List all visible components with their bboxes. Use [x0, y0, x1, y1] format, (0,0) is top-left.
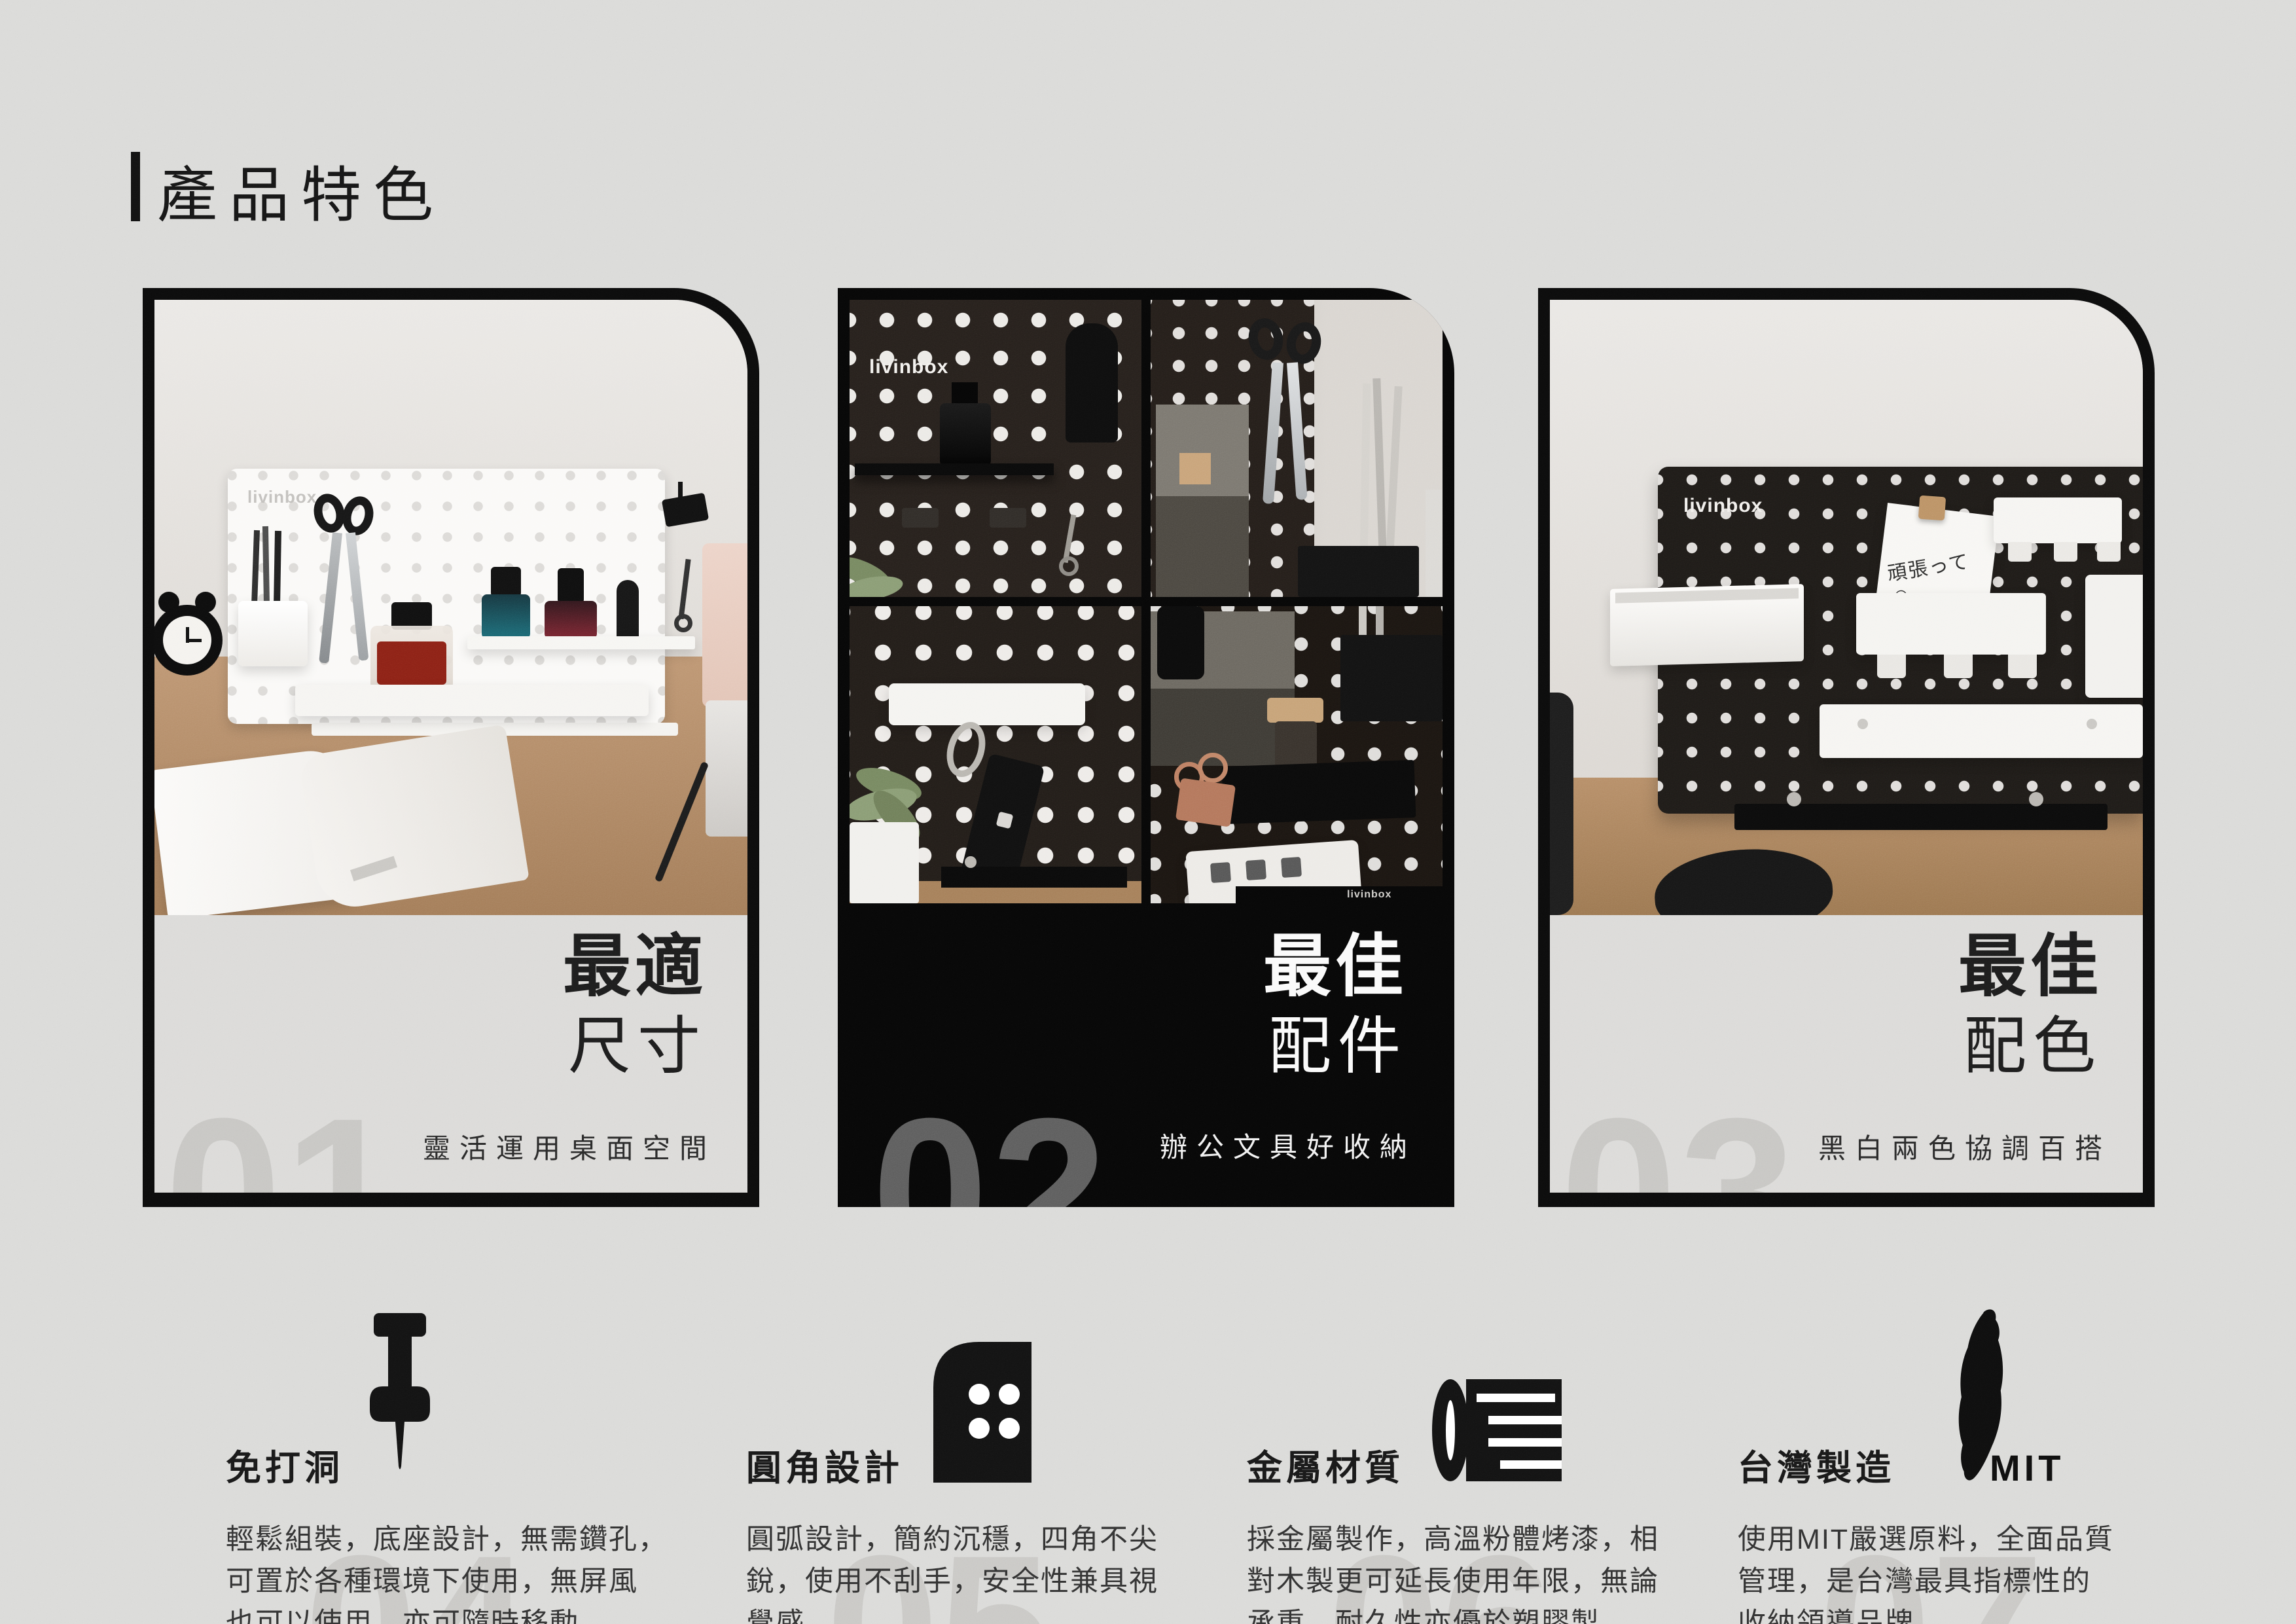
ink-bottle-cap [558, 568, 584, 604]
binder-clip-body [1175, 778, 1236, 827]
brand-logo: livinbox [247, 487, 317, 507]
black-ink-bottle [940, 403, 991, 466]
feature-title: 台灣製造 [1738, 1439, 1895, 1490]
red-ink-bottle [545, 601, 597, 639]
hook-tab [2008, 542, 2032, 562]
pen [1372, 378, 1386, 555]
sheet-line [1488, 1438, 1562, 1447]
card-subtitle: 黑白兩色協調百搭 [1818, 1127, 2111, 1166]
pushpin-icon [370, 1313, 430, 1477]
photo-black-pegboard-desk: livinbox 頑張って☺ [1550, 300, 2143, 915]
card-title-light: 配色 [1818, 1015, 2102, 1078]
peg-hole [969, 1384, 990, 1405]
pushpin-neck [388, 1337, 412, 1386]
black-pen-cup [1340, 635, 1443, 721]
white-box-edge [1426, 490, 1443, 597]
page-title: 產品特色 [157, 147, 445, 234]
black-shelf [855, 463, 1054, 475]
peg-hole [999, 1418, 1020, 1439]
pen [1360, 384, 1371, 555]
feature-rounded-corners: 05 圓角設計 圓弧設計，簡約沉穩，四角不尖 銳，使用不刮手，安全性兼具視 覺感… [746, 1303, 1257, 1624]
screw [965, 856, 977, 868]
black-base-plate [1734, 804, 2108, 830]
card-number: 02 [872, 1087, 1110, 1207]
hook-tab [2008, 655, 2037, 678]
white-plant-pot [850, 822, 919, 903]
key-fob [1157, 606, 1204, 679]
white-tray [295, 685, 649, 716]
notebook-page [298, 724, 529, 912]
wood-magnet-cube [1179, 453, 1211, 484]
white-hook-rail [889, 683, 1085, 725]
feature-description: 使用MIT嚴選原料，全面品質 管理，是台灣最具指標性的 收納領導品牌。 [1738, 1519, 2114, 1624]
key-ring [1059, 556, 1079, 576]
gray-box [706, 700, 747, 837]
feature-description: 採金屬製作，高溫粉體烤漆，相 對木製更可延長使用年限，無論 承重、耐久性亦優於塑… [1247, 1519, 1659, 1624]
screw [2029, 792, 2043, 806]
mit-badge: MIT [1990, 1447, 2064, 1489]
hook-tab [2097, 542, 2121, 562]
card-title-bold: 最佳 [1818, 933, 2102, 1001]
feature-no-drilling: 04 免打洞 輕鬆組裝，底座設計，無需鑽孔， 可置於各種環境下使用，無屏風 也可… [226, 1303, 736, 1624]
card-number: 01 [165, 1087, 403, 1207]
hook-tab [1944, 655, 1973, 678]
card-title-light: 配件 [1160, 1015, 1407, 1078]
card-title-bold: 最佳 [1160, 933, 1407, 1001]
feature-title: 金屬材質 [1247, 1439, 1404, 1490]
peg-hole [969, 1418, 990, 1439]
black-canister [1066, 323, 1118, 442]
base-plate [1236, 886, 1443, 903]
marker [617, 580, 639, 640]
photo-desk-accessories: livinbox [1151, 606, 1443, 903]
hook-tab [2054, 542, 2077, 562]
feature-title: 免打洞 [226, 1439, 344, 1490]
brand-logo: livinbox [869, 356, 948, 378]
white-hook-rail-top [1994, 497, 2122, 543]
clock-hand [187, 639, 202, 642]
feature-metal-material: 06 金屬材質 採金屬製作，高溫粉體烤漆，相 對木製更可延長使用年限，無論 承重… [1247, 1303, 1757, 1624]
product-feature-poster: 產品特色 livinbox [0, 0, 2296, 1624]
key-ring [674, 614, 692, 632]
sheet-line [1477, 1394, 1555, 1402]
binder-clip-handle [1198, 753, 1228, 783]
card-title-light: 尺寸 [423, 1015, 707, 1078]
sheet-line [1500, 1460, 1562, 1469]
pen-cup [238, 601, 308, 666]
teal-ink-bottle [482, 594, 530, 639]
white-long-tray [1820, 704, 2143, 758]
screw [1787, 792, 1801, 806]
hook [990, 508, 1026, 528]
wood-jar-lid [1267, 698, 1323, 723]
white-hook-rail [1856, 593, 2046, 655]
card-number: 03 [1560, 1087, 1799, 1207]
photo-black-pegboard-shelf: livinbox [850, 300, 1141, 597]
photo-scissors-pens [1151, 300, 1443, 597]
pushpin-body [370, 1386, 430, 1422]
card-best-accessories: livinbox [838, 288, 1454, 1207]
brand-logo: livinbox [1683, 495, 1763, 517]
feature-description: 輕鬆組裝，底座設計，無需鑽孔， 可置於各種環境下使用，無屏風 也可以使用，亦可隨… [226, 1519, 668, 1624]
photo-key-hook-plant [850, 606, 1141, 903]
card-caption: 最佳 配色 黑白兩色協調百搭 [1818, 933, 2102, 1166]
photo-white-pegboard-desk: livinbox [154, 300, 747, 915]
pushpin-needle [395, 1422, 404, 1470]
metal-roll-slit [1446, 1400, 1455, 1460]
dark-object [1550, 693, 1573, 915]
outlet [1281, 857, 1302, 878]
card-best-colors: livinbox 頑張って☺ 03 最佳 [1538, 288, 2155, 1207]
wooden-pin [1918, 496, 1946, 521]
screw [1857, 719, 1868, 729]
card-caption: 最適 尺寸 靈活運用桌面空間 [423, 933, 707, 1166]
outlet [1210, 862, 1231, 883]
city-skyline [1156, 496, 1249, 597]
feature-description: 圓弧設計，簡約沉穩，四角不尖 銳，使用不刮手，安全性兼具視 覺感。 [746, 1519, 1158, 1624]
screw [2087, 719, 2097, 729]
card-caption: 最佳 配件 辦公文具好收納 [1160, 933, 1407, 1165]
key [1063, 514, 1077, 563]
pink-box [702, 543, 747, 707]
base-plate [941, 867, 1127, 888]
outlet [1246, 859, 1266, 880]
metal-sheet-icon [1431, 1378, 1562, 1483]
black-tray [1222, 760, 1416, 824]
rounded-plate [933, 1342, 1031, 1483]
red-ink [377, 641, 446, 685]
hook [902, 508, 939, 528]
pen [1386, 386, 1402, 555]
peg-hole [999, 1384, 1020, 1405]
card-subtitle: 靈活運用桌面空間 [423, 1127, 716, 1166]
card-best-size: livinbox [143, 288, 759, 1207]
ink-bottle-cap [952, 382, 978, 406]
black-pen-cup [1298, 546, 1419, 597]
feature-title: 圓角設計 [746, 1439, 903, 1490]
white-shelf [467, 636, 695, 649]
brand-logo: livinbox [1347, 889, 1391, 901]
sheet-line [1488, 1416, 1562, 1424]
ink-bottle-cap [491, 567, 521, 597]
carabiner [941, 717, 992, 782]
card-title-bold: 最適 [423, 933, 707, 1001]
rounded-corner-icon [933, 1342, 1031, 1483]
feature-made-in-taiwan: 07 MIT 台灣製造 使用MIT嚴選原料，全面品質 管理，是台灣最具指標性的 … [1738, 1303, 2248, 1624]
hook-tab [1877, 655, 1906, 678]
card-subtitle: 辦公文具好收納 [1160, 1125, 1416, 1165]
pen [274, 531, 281, 605]
title-accent-bar [131, 152, 140, 221]
pushpin-head [374, 1313, 426, 1337]
white-corner-shelf [2085, 575, 2143, 698]
